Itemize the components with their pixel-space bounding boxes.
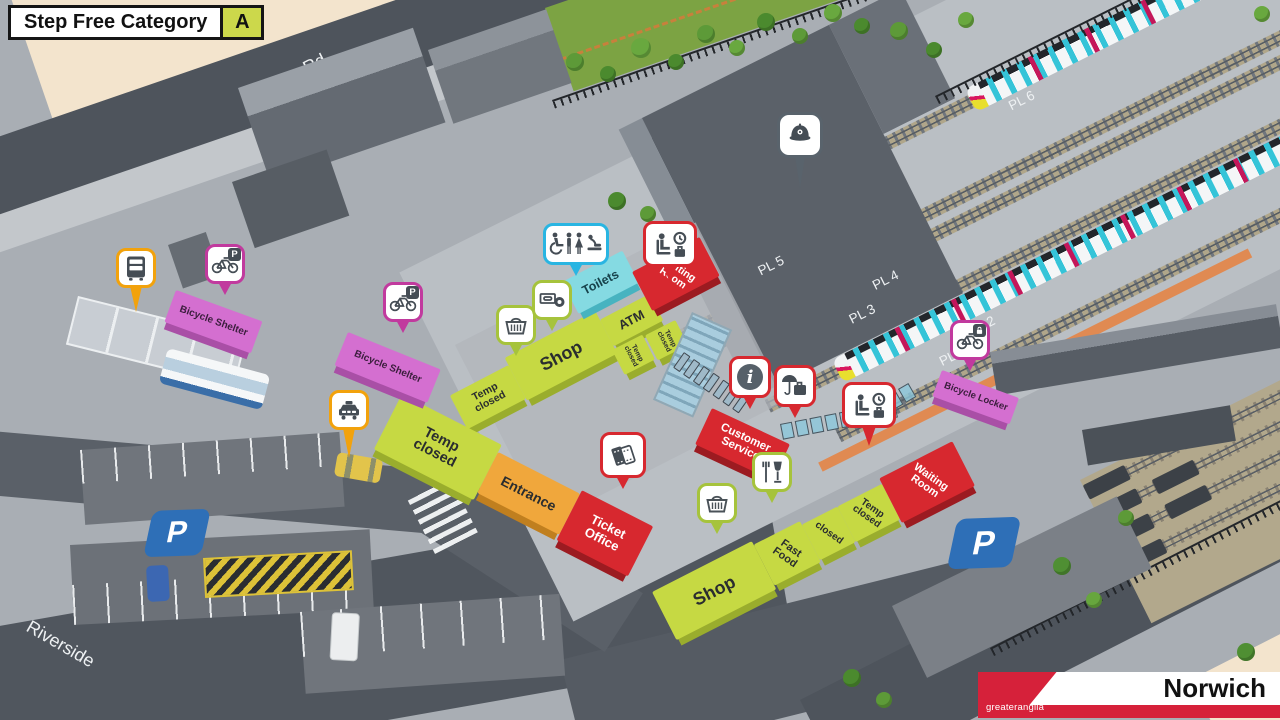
waiting-room-pin[interactable] [643, 221, 697, 283]
building-label: Temp closed [621, 340, 646, 370]
toilets-icon [543, 223, 609, 265]
building-label: ATM [616, 308, 646, 333]
building-label: closed [813, 520, 845, 547]
parking-sign: P [947, 517, 1022, 570]
tree [631, 38, 651, 58]
station-banner: Norwich greateranglia [978, 672, 1280, 718]
buffer-stop [1152, 460, 1200, 495]
bus-icon [116, 248, 156, 288]
tree [926, 42, 942, 58]
waiting-room-icon [842, 382, 896, 428]
fast-food-pin[interactable] [752, 452, 792, 503]
shop-pin[interactable] [496, 305, 536, 356]
police-icon [777, 112, 823, 158]
glass-panel [824, 413, 839, 431]
building-label: Temp closed [850, 495, 888, 530]
hatched-area [203, 550, 354, 598]
building-label: Fast Food [768, 535, 806, 571]
bus-stop-pin[interactable] [116, 248, 156, 312]
parking-sign-letter: P [163, 516, 190, 551]
tickets-icon [600, 432, 646, 478]
buffer-stop [1164, 485, 1212, 520]
pin-pointer [663, 265, 677, 283]
bicycle-locker-pin[interactable] [950, 320, 990, 371]
pin-pointer [130, 286, 142, 312]
parking-sign: P [143, 509, 211, 557]
tree [1086, 592, 1102, 608]
tree [876, 692, 892, 708]
building-label: Ticket Office [578, 511, 631, 556]
taxi-icon [329, 390, 369, 430]
building-label: Bicycle Shelter [352, 349, 422, 386]
cash-machine-icon [532, 280, 572, 320]
shopping-basket-icon [496, 305, 536, 345]
step-free-category-label: Step Free Category [8, 5, 223, 40]
shop-pin[interactable] [697, 483, 737, 534]
tree [1053, 557, 1071, 575]
taxi-rank-pin[interactable] [329, 390, 369, 458]
customer-service-pin[interactable]: i [729, 356, 771, 409]
bicycle-parking-pin[interactable]: P [383, 282, 423, 333]
building-label: Shop [537, 337, 586, 374]
bicycle-locker-icon [950, 320, 990, 360]
left-luggage-pin[interactable] [774, 365, 816, 418]
glass-panel [795, 419, 810, 437]
tree [854, 18, 870, 34]
pin-pointer [343, 428, 355, 458]
tree [668, 54, 684, 70]
tree [566, 53, 584, 71]
building-label: Temp closed [402, 419, 474, 476]
building-label: Entrance [499, 473, 559, 513]
waiting-room-pin[interactable] [842, 382, 896, 446]
building-label: Temp closed [463, 377, 512, 417]
tree [1237, 643, 1255, 661]
information-icon: i [729, 356, 771, 398]
tree [600, 66, 616, 82]
parking-badge: P [228, 248, 241, 261]
station-name-panel: Norwich [978, 672, 1280, 705]
toilets-pin[interactable] [543, 223, 609, 276]
fast-food-icon [752, 452, 792, 492]
glass-panel [809, 416, 824, 434]
tree [757, 13, 775, 31]
tree [1254, 6, 1270, 22]
station-map: Thorpe Rd Riverside Koblenz Av PL 6 PL 5… [0, 0, 1280, 720]
tree [792, 28, 808, 44]
tree [640, 206, 656, 222]
tree [958, 12, 974, 28]
pin-pointer [795, 156, 805, 188]
lock-badge [973, 324, 986, 337]
tree [890, 22, 908, 40]
van [329, 612, 359, 661]
ticket-office-pin[interactable] [600, 432, 646, 489]
left-luggage-icon [774, 365, 816, 407]
waiting-room-icon [643, 221, 697, 267]
tree [608, 192, 626, 210]
pin-pointer [862, 426, 876, 446]
step-free-category-badge: Step Free Category A [8, 5, 264, 40]
police-pin[interactable] [777, 112, 823, 188]
building-label: Waiting Room [903, 460, 952, 504]
car [146, 565, 170, 602]
bicycle-parking-icon: P [383, 282, 423, 322]
tree [824, 4, 842, 22]
step-free-category-value: A [223, 5, 264, 40]
tree [729, 40, 745, 56]
info-glyph: i [747, 367, 754, 388]
tree [843, 669, 861, 687]
building-label: Shop [690, 572, 739, 609]
bicycle-parking-icon: P [205, 244, 245, 284]
tree [697, 25, 715, 43]
glass-panel [780, 422, 795, 440]
atm-pin[interactable] [532, 280, 572, 331]
parking-badge: P [406, 286, 419, 299]
parking-sign-letter: P [969, 523, 999, 562]
bicycle-parking-pin[interactable]: P [205, 244, 245, 295]
station-name: Norwich [1163, 673, 1266, 704]
tree [1118, 510, 1134, 526]
riverside-road-label: Riverside [23, 616, 98, 672]
shopping-basket-icon [697, 483, 737, 523]
operator-logo: greateranglia [986, 702, 1044, 713]
